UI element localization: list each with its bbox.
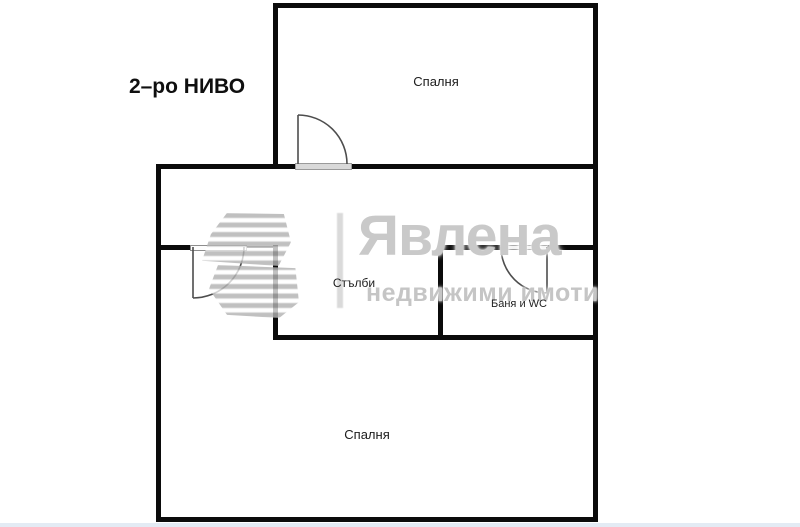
room-label-bedroom-top: Спалня [413,74,458,89]
floor-plan: Явлена недвижими имоти 2–ро НИВО Спалня … [0,0,800,527]
watermark-brand: Явлена [358,208,561,265]
watermark-divider-bar [337,213,343,308]
level-label: 2–ро НИВО [129,75,245,99]
door-arc-top-bedroom [298,115,347,164]
room-label-bath-wc: Баня и WC [491,298,547,310]
watermark-tagline: недвижими имоти [366,281,599,306]
room-label-bedroom-bottom: Спалня [344,427,389,442]
room-label-stairs: Стълби [333,276,375,290]
